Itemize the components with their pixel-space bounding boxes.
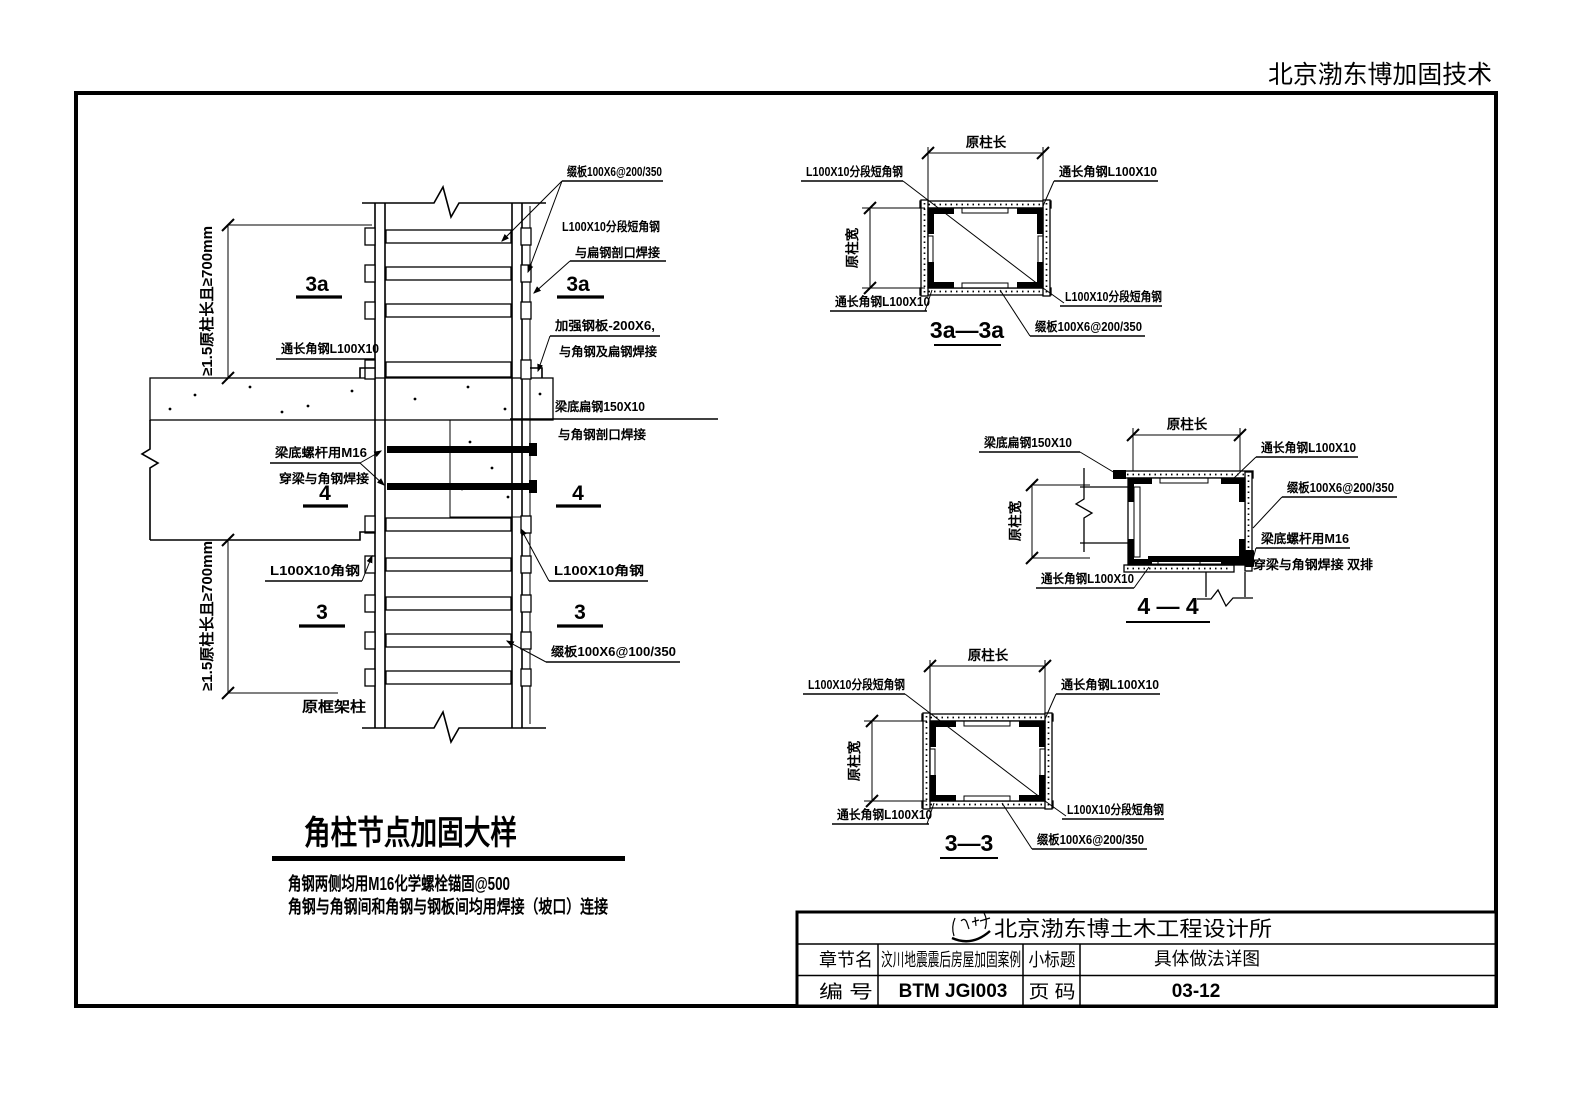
through-bolts [387, 443, 537, 493]
s4-dim-width: 原柱宽 [1007, 500, 1023, 541]
cont-angle-text: 通长角钢L100X10 [281, 341, 379, 356]
chapter-label: 章节名 [819, 950, 873, 970]
page-header-brand: 北京渤东博加固技术 [1268, 61, 1492, 89]
s3-dim-length: 原柱长 [968, 647, 1009, 663]
column-bottom-break [362, 712, 546, 742]
marker-4-left: 4 [319, 482, 331, 505]
drawing-sheet: 北京渤东博加固技术 [0, 0, 1571, 1098]
s3a-seg-angle-br: L100X10分段短角钢 [1065, 289, 1162, 304]
orig-column-text: 原框架柱 [302, 698, 367, 716]
chapter-value: 汶川地震震后房屋加固案例 [881, 950, 1021, 970]
s3a-seg-angle-tl: L100X10分段短角钢 [806, 164, 903, 179]
beam-flat-text: 梁底扁钢150X10 [554, 399, 645, 414]
subtitle-label: 小标题 [1029, 950, 1076, 970]
marker-3-left: 3 [316, 601, 328, 624]
bolt-text: 梁底螺杆用M16 [274, 445, 367, 460]
batten-100-text: 缀板100X6@100/350 [551, 644, 676, 659]
s3a-title: 3a—3a [930, 317, 1004, 343]
batten-200-text: 缀板100X6@200/350 [567, 164, 662, 179]
s3-seg-angle-br: L100X10分段短角钢 [1067, 802, 1164, 817]
batten-plates-upper [365, 228, 531, 379]
s4-cont-angle-bl: 通长角钢L100X10 [1041, 571, 1134, 586]
marker-3a-right: 3a [566, 273, 590, 296]
column-top-break [362, 187, 546, 217]
s4-cont-angle-tr: 通长角钢L100X10 [1261, 440, 1356, 455]
s4-title: 4 — 4 [1137, 593, 1199, 619]
s3a-dim-length: 原柱长 [966, 134, 1007, 150]
s4-bolt-weld: 穿梁与角钢焊接 双排 [1253, 557, 1374, 572]
column-verticals [375, 203, 530, 728]
s3a-cont-angle-bl: 通长角钢L100X10 [835, 294, 930, 309]
s4-beam-flat: 梁底扁钢150X10 [983, 435, 1072, 450]
strengthen-plate-text: 加强钢板-200X6, [554, 318, 655, 333]
s3a-cont-angle-tr: 通长角钢L100X10 [1059, 164, 1157, 179]
company-name: 北京渤东博土木工程设计所 [994, 917, 1272, 941]
note-2: 角钢与角钢间和角钢与钢板间均用焊接（坡口）连接 [288, 896, 608, 917]
marker-4-right: 4 [572, 482, 584, 505]
drawing-canvas: 北京渤东博加固技术 [0, 0, 1571, 1098]
number-label: 编 号 [819, 982, 873, 1002]
s4-batten: 缀板100X6@200/350 [1287, 480, 1394, 495]
s3a-batten: 缀板100X6@200/350 [1035, 319, 1142, 334]
s3-cont-angle-bl: 通长角钢L100X10 [837, 807, 932, 822]
label-angle-left: L100X10角钢 [265, 556, 372, 581]
drawing-title: 角柱节点加固大样 [304, 814, 517, 851]
label-strengthen-plate: 加强钢板-200X6, 与角钢及扁钢焊接 [538, 318, 660, 371]
s3a-dim-width: 原柱宽 [844, 227, 860, 268]
number-value: BTM JGI003 [899, 981, 1008, 1002]
section-view-3: 原柱长 原柱宽 L100X10分段短角钢 通长角钢L100X10 通长角钢L10… [803, 647, 1164, 858]
seg-angle-weld-text: 与扁钢剖口焊接 [575, 245, 660, 260]
title-block: 北京渤东博土木工程设计所 章节名 汶川地震震后房屋加固案例 小标题 具体做法详图… [797, 912, 1496, 1006]
title-underline [272, 856, 625, 861]
label-angle-right: L100X10角钢 [521, 529, 648, 581]
label-seg-angle: L100X10分段短角钢 与扁钢剖口焊接 [534, 219, 666, 293]
s3-seg-angle-tl: L100X10分段短角钢 [808, 677, 905, 692]
page-value: 03-12 [1172, 981, 1221, 1002]
beam-flat-weld-text: 与角钢剖口焊接 [558, 427, 646, 442]
section-view-4: 原柱长 原柱宽 梁底扁钢150X10 通长角钢L100X10 缀板100X6@2… [979, 416, 1397, 622]
marker-3a-left: 3a [305, 273, 329, 296]
s3-title: 3—3 [945, 830, 994, 856]
label-bolt: 梁底螺杆用M16 穿梁与角钢焊接 [270, 445, 384, 486]
marker-3-right: 3 [574, 601, 586, 624]
beam-hatch-band [150, 378, 553, 420]
angle-left-text: L100X10角钢 [270, 563, 360, 578]
label-batten-100: 缀板100X6@100/350 [507, 641, 680, 662]
s3-cont-angle-tr: 通长角钢L100X10 [1061, 677, 1159, 692]
angle-right-text: L100X10角钢 [554, 563, 644, 578]
section-view-3a: 原柱长 原柱宽 L100X10分段短角钢 通长角钢L100X10 通长角钢L10… [801, 134, 1162, 345]
elevation-corner-column: ≥1.5原柱长且≥700mm ≥1.5原柱长且≥700mm 缀板100X6@20… [142, 164, 718, 917]
s4-dim-length: 原柱长 [1167, 416, 1208, 432]
s4-bolt: 梁底螺杆用M16 [1260, 531, 1349, 546]
seg-angle-text: L100X10分段短角钢 [562, 219, 660, 234]
dim-lower-text: ≥1.5原柱长且≥700mm [198, 541, 216, 691]
s3-dim-width: 原柱宽 [846, 740, 862, 781]
label-cont-angle-left: 通长角钢L100X10 [276, 341, 379, 359]
sheet-border [76, 93, 1496, 1006]
dim-upper-text: ≥1.5原柱长且≥700mm [198, 226, 216, 376]
batten-plates-lower [365, 516, 531, 686]
s3-batten: 缀板100X6@200/350 [1037, 832, 1144, 847]
note-1: 角钢两侧均用M16化学螺栓锚固@500 [288, 873, 510, 894]
strengthen-weld-text: 与角钢及扁钢焊接 [559, 344, 657, 359]
page-label: 页 码 [1029, 982, 1076, 1002]
subtitle-value: 具体做法详图 [1154, 949, 1260, 969]
